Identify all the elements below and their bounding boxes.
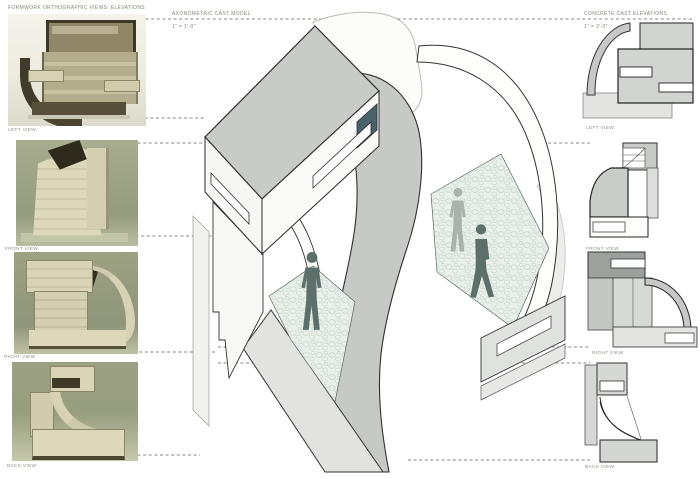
elevation-side-strip <box>647 168 658 218</box>
model-tab <box>104 80 140 92</box>
elevation-label-back-view: BACK VIEW <box>585 465 614 470</box>
model-side-slab <box>87 148 110 229</box>
photo-label-back-view: BACK VIEW <box>7 464 36 469</box>
model-top-box <box>26 260 92 293</box>
model-shadow <box>28 115 130 119</box>
elevation-base <box>600 440 657 462</box>
elevation-front-view <box>581 141 699 247</box>
presentation-board: FORMWORK ORTHOGRAPHIC VIEWS: ELEVATIONS … <box>0 0 700 487</box>
elevation-top-block <box>640 23 693 49</box>
elevation-right-view <box>581 251 699 357</box>
detail-line <box>627 396 641 439</box>
elevation-slot-window <box>611 259 645 268</box>
elevation-label-right-view: RIGHT VIEW <box>592 351 623 356</box>
elevation-back-view <box>581 360 699 466</box>
elevation-side-strip <box>585 365 597 445</box>
right-title-text: CONCRETE CAST ELEVATIONS <box>584 11 667 18</box>
model-base-box <box>29 330 126 349</box>
elevation-slot-window <box>659 83 693 92</box>
model-base-box <box>32 429 125 460</box>
formwork-photo-left-view <box>8 14 146 126</box>
elevation-label-left-view: LEFT VIEW <box>586 126 614 131</box>
model-mid-box <box>34 291 88 332</box>
model-top-stripe <box>52 26 118 34</box>
model-tab <box>28 70 64 82</box>
model-dark-band <box>52 378 80 388</box>
elevation-slot-window <box>620 67 652 77</box>
formwork-photo-right-view <box>14 252 138 354</box>
elevation-dome <box>590 168 628 217</box>
left-wall-strip <box>193 216 209 426</box>
left-section-title: FORMWORK ORTHOGRAPHIC VIEWS: ELEVATIONS <box>8 5 145 12</box>
photo-label-left-view: LEFT VIEW <box>8 128 36 133</box>
elevation-left-view <box>581 20 699 126</box>
axonometric-drawing <box>185 10 577 482</box>
elevation-slot-window <box>593 222 625 232</box>
photo-label-right-view: RIGHT VIEW <box>4 355 35 360</box>
arc-line <box>600 397 641 440</box>
model-base-bar <box>32 102 126 115</box>
formwork-photo-back-view <box>12 362 138 461</box>
elevation-slot-window <box>600 381 624 391</box>
formwork-photo-front-view <box>16 140 138 246</box>
elevation-slot-window <box>665 333 694 343</box>
